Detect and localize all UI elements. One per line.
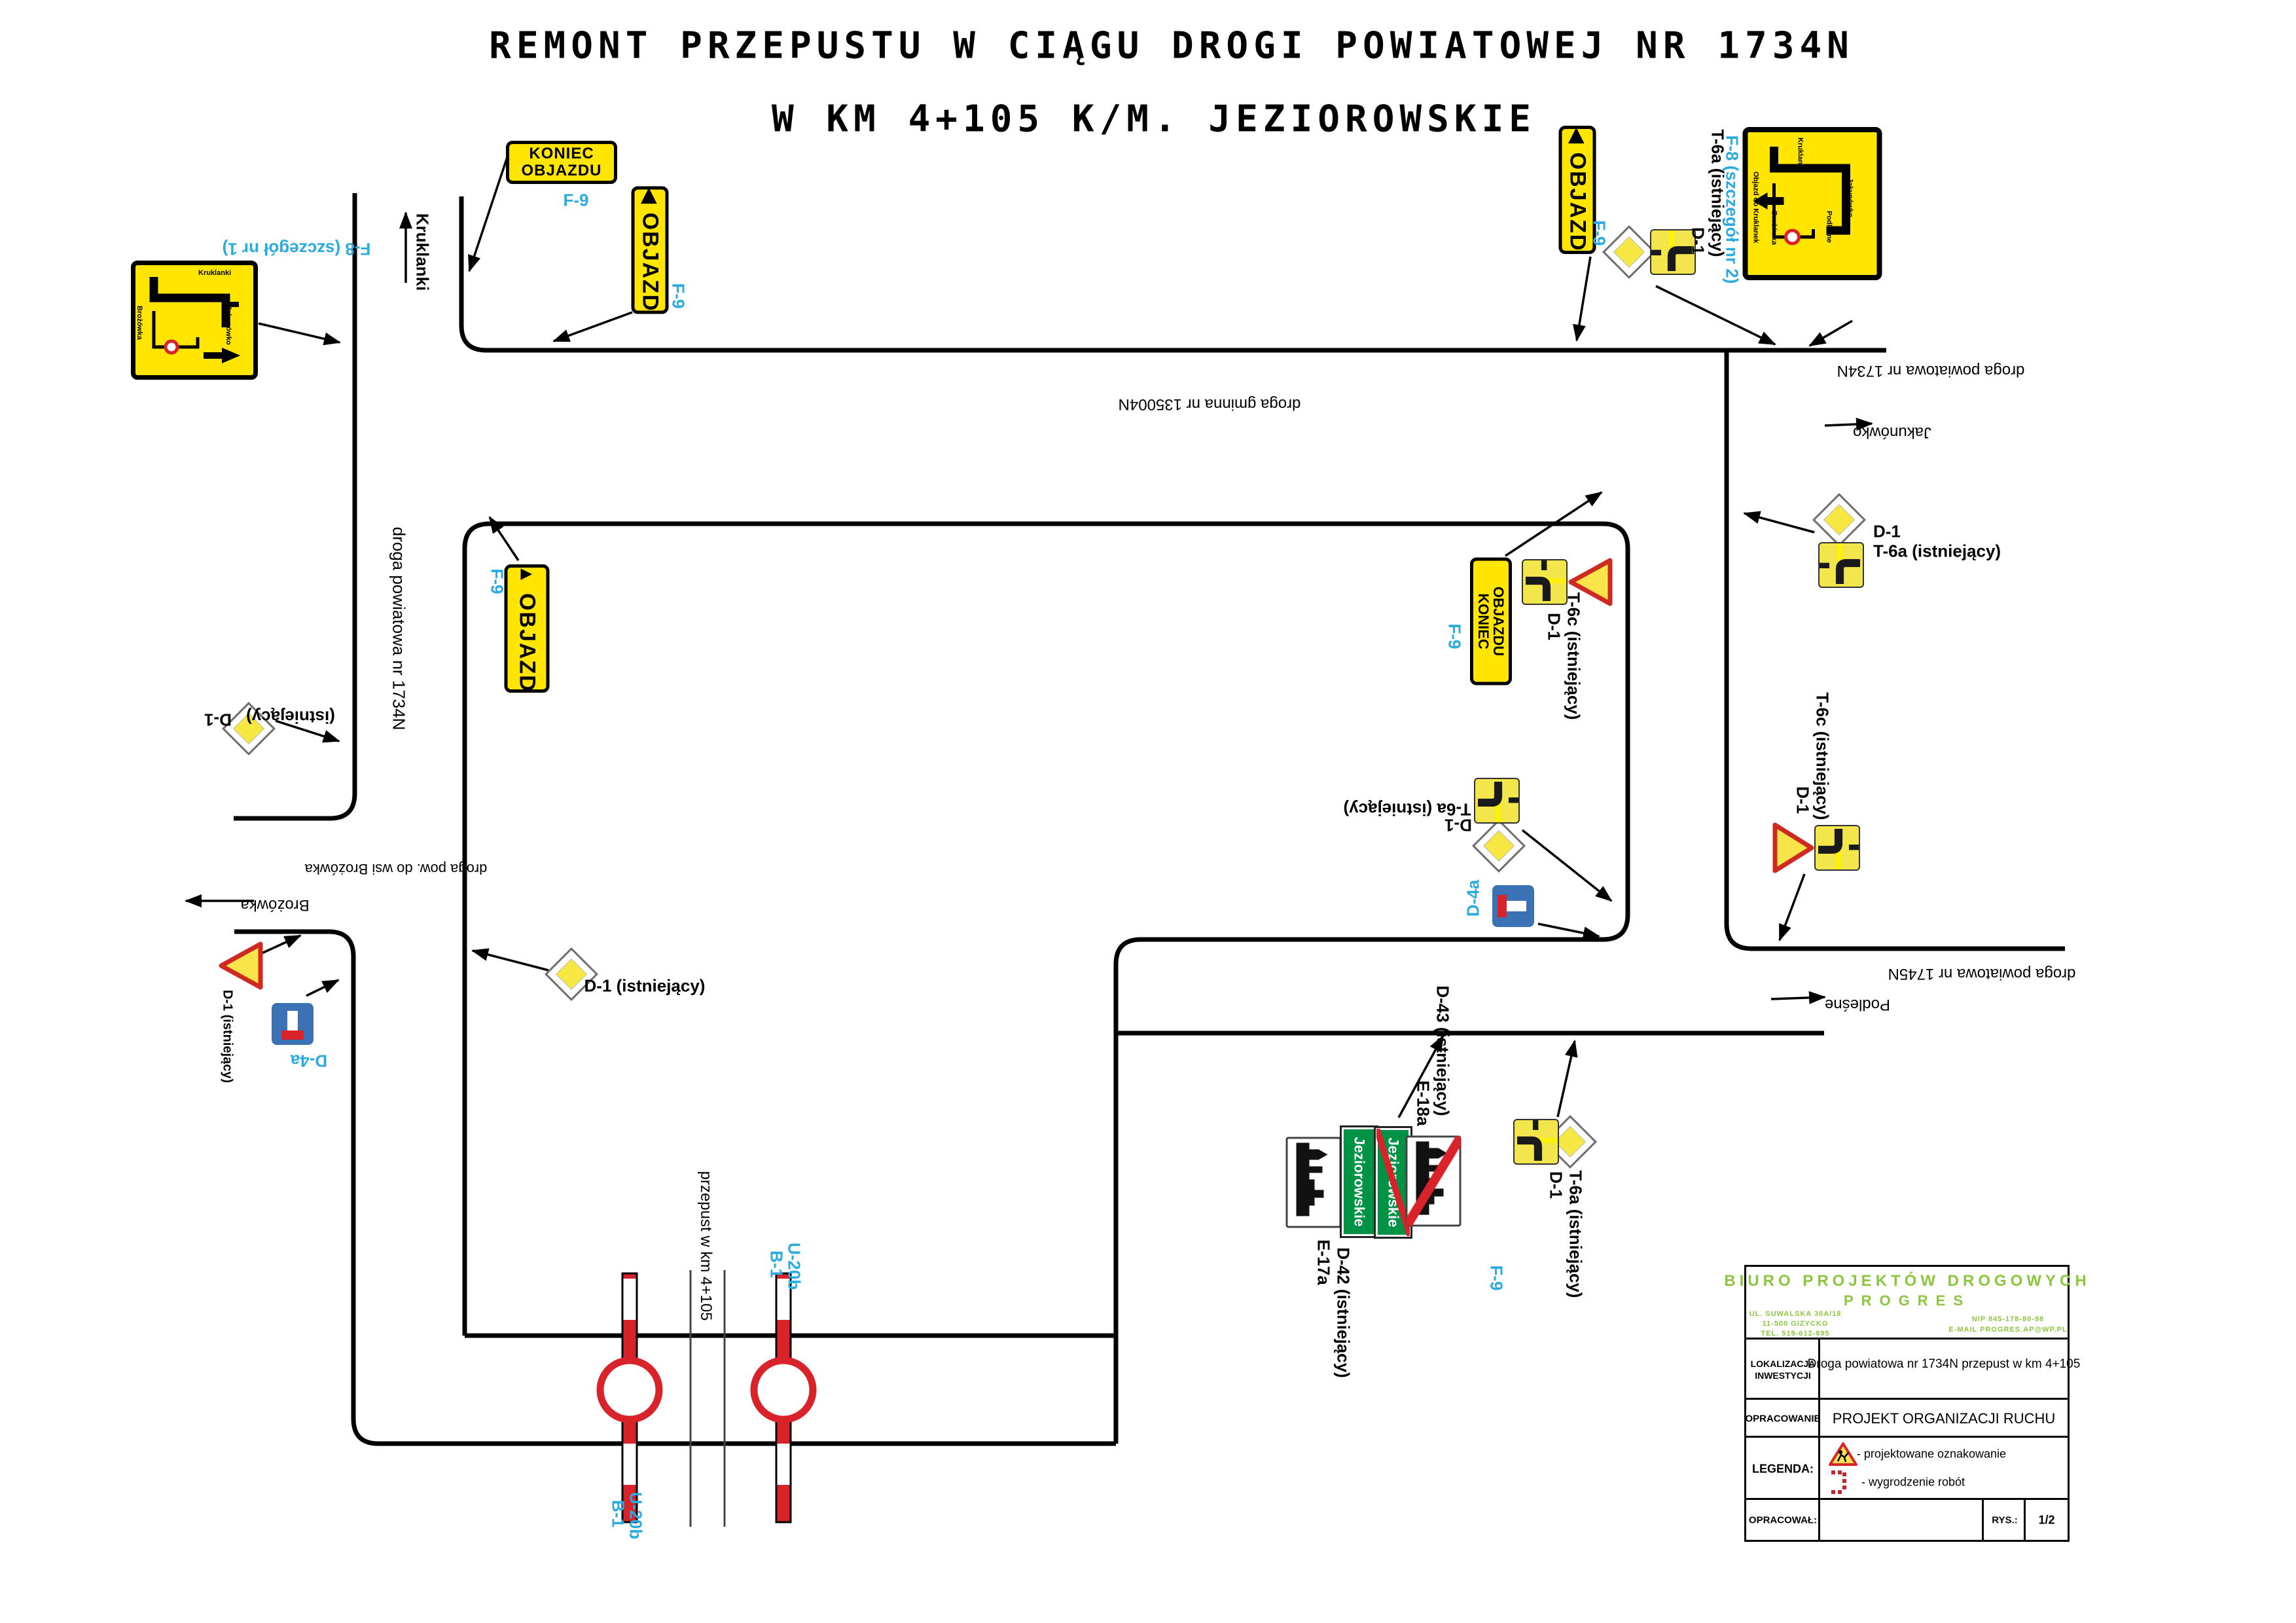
sign-f9-objazd-top-left: ◀ OBJAZD	[632, 187, 669, 314]
d4a-dead-end-bar	[281, 1030, 304, 1040]
page-title-line1: REMONT PRZEPUSTU W CIĄGU DROGI POWIATOWE…	[489, 25, 1854, 67]
code-t6a-ist: T-6a (istniejący)	[1566, 1170, 1586, 1298]
code-istniejacy: (istniejący)	[246, 707, 335, 727]
code-d1: D-1	[1544, 613, 1564, 640]
code-d1: D-1	[1546, 1171, 1566, 1199]
sign-d42-town	[1286, 1137, 1342, 1228]
code-f9: F-9	[1589, 221, 1609, 246]
d4a-dead-end-bar	[1498, 895, 1507, 917]
town-name: Jeziorowskie	[1351, 1137, 1368, 1227]
plate-t6a-mid-right	[1818, 542, 1864, 588]
loc-value-cell: Droga powiatowa nr 1734N przepust w km 4…	[1820, 1340, 2068, 1400]
sign-f9-objazd-mid-left: ▲ OBJAZD	[505, 564, 550, 693]
arrow-right-icon: ▲	[516, 564, 538, 585]
a7-triangle-bottom-left	[221, 944, 260, 987]
title-block: BIURO PROJEKTÓW DROGOWYCH PROGRES UL. SU…	[1744, 1265, 2070, 1542]
code-d1-ist: D-1 (istniejący)	[584, 976, 706, 996]
objazd-label: OBJAZD	[514, 593, 540, 693]
end-of-town-slash	[1407, 1137, 1461, 1226]
code-d1: D-1	[1793, 786, 1813, 814]
code-u20b: U-20b	[626, 1492, 646, 1539]
d1-core	[556, 958, 587, 990]
code-d43-ist: D-43 (istniejący)	[1433, 985, 1453, 1116]
company-name-line2: PROGRES	[1844, 1292, 1971, 1309]
sign-f8-map-detail-1: Kruklanki Jakunówko Brożówka	[131, 261, 258, 380]
f8-place-brozowka: Brożówka	[1770, 211, 1778, 245]
objazdu-line: OBJAZDU	[521, 162, 601, 179]
company-phone: TEL. 519-612-895	[1761, 1330, 1829, 1338]
code-f9: F-9	[487, 569, 507, 594]
road-label-pow-brozowka: droga pow. do wsi Brożówka	[305, 860, 488, 877]
code-f9: F-9	[668, 283, 689, 309]
loc-label-line1: LOKALIZACJA	[1751, 1359, 1816, 1369]
code-u20b: U-20b	[784, 1243, 804, 1290]
code-f9: F-9	[1486, 1266, 1507, 1291]
company-address-line2: 11-500 GIZYCKO	[1763, 1320, 1829, 1328]
plate-t6a-bottom-right	[1513, 1119, 1559, 1165]
code-f8-detail-1: F-8 (szczegół nr 1)	[223, 239, 371, 259]
annotation-arrows	[186, 157, 1872, 1118]
drawing-label: RYS.:	[1992, 1515, 2017, 1526]
plate-t6c-right	[1814, 825, 1860, 871]
sign-d4a-bottom-left	[272, 1003, 314, 1045]
roads	[234, 193, 2065, 1444]
road-label-pow-1734-left: droga powiatowa nr 1734N	[389, 527, 409, 731]
f8-place-jakunowko: Jakunówko	[224, 306, 232, 345]
drawing-number: 1/2	[2038, 1514, 2054, 1527]
arrow-up-icon: ◀	[639, 189, 662, 205]
study-label-cell: OPRACOWANIE	[1746, 1400, 1820, 1438]
legend-label: LEGENDA:	[1752, 1463, 1814, 1476]
code-d1: D-1	[204, 710, 232, 730]
study-value: PROJEKT ORGANIZACJI RUCHU	[1833, 1410, 2056, 1427]
town-silhouette	[1292, 1139, 1340, 1222]
code-t6a-ist: T-6a (istniejący)	[1873, 541, 2001, 562]
code-t6c-ist: T-6c (istniejący)	[1564, 592, 1584, 720]
code-f8-detail-2: F-8 (szczegół nr 2)	[1722, 136, 1742, 284]
road-label-pow-1745: droga powiatowa nr 1745N	[1888, 964, 2076, 983]
plate-t6a-mid-rotated	[1474, 778, 1520, 824]
code-t6c-ist: T-6c (istniejący)	[1812, 692, 1833, 820]
code-d4a: D-4a	[291, 1051, 327, 1071]
legend-item-1: - projektowane oznakowanie	[1857, 1448, 2006, 1461]
company-name-line1: BIURO PROJEKTÓW DROGOWYCH	[1724, 1272, 2090, 1290]
road-label-gminna: droga gminna nr 135004N	[1119, 395, 1301, 413]
roadworks-warning-icon	[1829, 1442, 1857, 1467]
code-e17a: E-17a	[1314, 1239, 1334, 1285]
place-podlesne: Podleśne	[1825, 995, 1890, 1013]
legend-item-2: - wygrodzenie robót	[1861, 1476, 1965, 1489]
plate-t6c-mid	[1522, 559, 1568, 605]
code-d42-ist: D-42 (istniejący)	[1333, 1247, 1354, 1377]
legend-content-cell: - projektowane oznakowanie - wygrodzenie…	[1820, 1438, 2068, 1500]
barrier-u20b-left	[600, 1273, 659, 1522]
study-value-cell: PROJEKT ORGANIZACJI RUCHU	[1820, 1400, 2068, 1438]
code-e18a: E-18a	[1413, 1080, 1433, 1125]
road-label-pow-1734-top: droga powiatowa nr 1734N	[1837, 361, 2025, 380]
place-kruklanki: Kruklanki	[412, 213, 433, 291]
d1-core	[1613, 236, 1645, 268]
d1-core	[1823, 504, 1855, 536]
d1-core	[1554, 1126, 1586, 1158]
f8-place-jakunowko: Jakunówko	[1846, 178, 1854, 217]
arrow-up-icon: ◀	[1566, 128, 1589, 145]
work-fence-icon	[1829, 1468, 1855, 1496]
sign-d4a-mid	[1492, 885, 1534, 927]
road-label-przepust: przepust w km 4+105	[696, 1171, 715, 1321]
objazd-label: OBJAZD	[1565, 153, 1590, 252]
traffic-plan-canvas: REMONT PRZEPUSTU W CIĄGU DROGI POWIATOWE…	[0, 0, 2296, 1623]
sign-f8-map-detail-2: Objazd do Kruklanek Kruklanki Jakunówko …	[1743, 127, 1882, 280]
koniec-line: KONIEC	[1476, 593, 1491, 649]
company-email: E-MAIL PROGRES.AP@WP.PL	[1948, 1326, 2067, 1334]
code-d1: D-1	[1873, 522, 1901, 542]
study-label: OPRACOWANIE	[1745, 1413, 1820, 1425]
f8-caption: Objazd do Kruklanek	[1752, 172, 1760, 243]
code-d1-ist: D-1 (istniejący)	[220, 990, 235, 1083]
code-f9: F-9	[1444, 624, 1465, 649]
f8-place-podlesne: Podleśne	[1825, 211, 1833, 243]
objazd-label: OBJAZD	[637, 213, 663, 312]
a7-triangle-right	[1775, 825, 1812, 871]
drawing-number-cell: 1/2	[2026, 1500, 2068, 1540]
sign-e17a-jeziorowskie: Jeziorowskie	[1342, 1127, 1376, 1236]
code-d1: D-1	[1688, 227, 1708, 255]
code-d4a: D-4a	[1463, 880, 1484, 917]
f8-place-kruklanki: Kruklanki	[198, 269, 231, 277]
title-block-header: BIURO PROJEKTÓW DROGOWYCH PROGRES UL. SU…	[1746, 1267, 2068, 1340]
sign-f9-koniec-objazdu-mid: OBJAZDU KONIEC	[1470, 558, 1512, 685]
company-nip: NIP 845-178-80-98	[1972, 1315, 2044, 1323]
koniec-line: KONIEC	[529, 145, 594, 162]
loc-label-line2: INWESTYCJI	[1755, 1370, 1811, 1381]
code-f9: F-9	[564, 191, 589, 211]
end-of-town-slash	[1376, 1129, 1410, 1236]
drawing-label-cell: RYS.:	[1984, 1500, 2026, 1540]
sign-f9-koniec-objazdu-top: KONIEC OBJAZDU	[506, 141, 617, 184]
page-title-line2: W KM 4+105 K/M. JEZIOROWSKIE	[772, 98, 1536, 141]
author-label-cell: OPRACOWAŁ:	[1746, 1500, 1820, 1540]
loc-value: Droga powiatowa nr 1734N przepust w km 4…	[1808, 1357, 2081, 1372]
objazdu-line: OBJAZDU	[1491, 587, 1506, 656]
legend-label-cell: LEGENDA:	[1746, 1438, 1820, 1500]
author-label: OPRACOWAŁ:	[1749, 1515, 1817, 1526]
f8-place-brozowka: Brożówka	[135, 306, 143, 340]
code-t6a-ist: T-6a (istniejący)	[1343, 799, 1471, 820]
barrier-u20b-right	[754, 1273, 813, 1522]
d1-core	[1483, 830, 1515, 862]
place-jakunowko: Jakunówko	[1853, 423, 1931, 441]
author-value-cell	[1820, 1500, 1984, 1540]
sign-d43-town-end	[1406, 1136, 1462, 1227]
place-brozowka: Brożówka	[240, 896, 309, 914]
company-address-line1: UL. SUWALSKA 30A/18	[1749, 1310, 1842, 1318]
f8-place-kruklanki: Kruklanki	[1797, 137, 1804, 170]
